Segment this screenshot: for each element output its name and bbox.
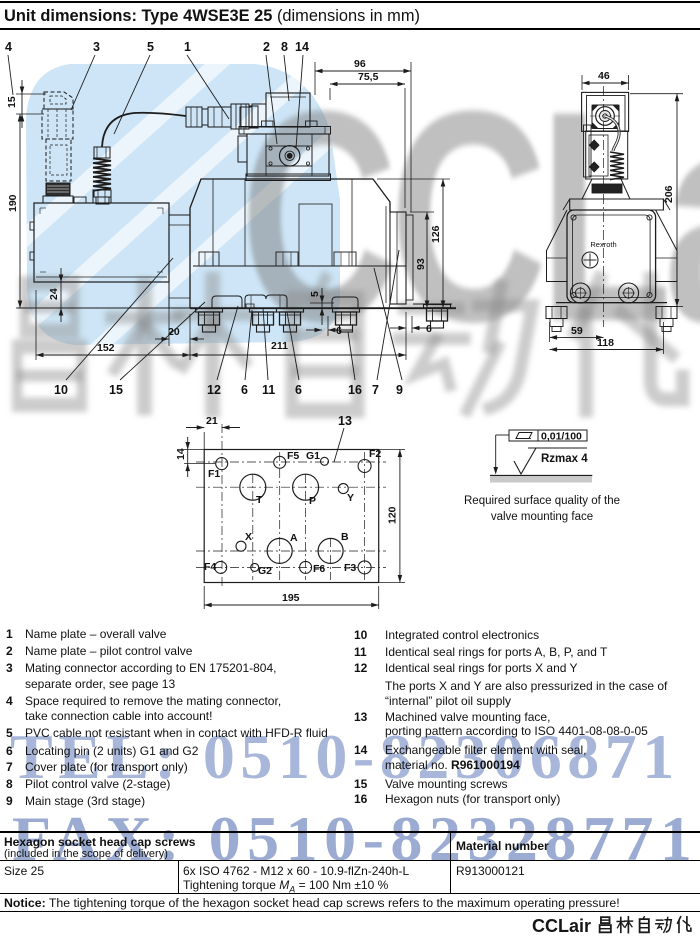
svg-text:24: 24 (48, 288, 60, 300)
svg-text:126: 126 (430, 225, 442, 243)
svg-text:T: T (256, 494, 263, 506)
svg-text:75,5: 75,5 (358, 71, 379, 83)
svg-text:10: 10 (54, 383, 68, 397)
svg-text:21: 21 (206, 415, 218, 427)
svg-text:4: 4 (5, 40, 12, 54)
svg-text:93: 93 (415, 258, 427, 270)
svg-text:6: 6 (336, 325, 342, 337)
svg-text:12: 12 (207, 383, 221, 397)
svg-text:14: 14 (175, 448, 187, 460)
svg-text:6: 6 (295, 383, 302, 397)
svg-text:190: 190 (7, 194, 19, 212)
svg-text:16: 16 (348, 383, 362, 397)
svg-text:211: 211 (271, 340, 288, 352)
svg-text:A: A (290, 532, 298, 544)
svg-text:120: 120 (387, 506, 399, 524)
svg-text:5: 5 (147, 40, 154, 54)
svg-text:13: 13 (338, 414, 352, 428)
svg-text:Rexroth: Rexroth (590, 240, 616, 249)
svg-text:8: 8 (281, 40, 288, 54)
svg-text:3: 3 (93, 40, 100, 54)
svg-text:14: 14 (295, 40, 309, 54)
svg-text:1: 1 (184, 40, 191, 54)
svg-text:F1: F1 (208, 468, 220, 480)
svg-text:118: 118 (597, 337, 614, 349)
svg-text:46: 46 (598, 70, 610, 82)
svg-text:15: 15 (6, 96, 18, 108)
svg-text:valve mounting face: valve mounting face (491, 511, 593, 523)
svg-text:59: 59 (571, 325, 583, 337)
svg-text:96: 96 (354, 58, 366, 70)
svg-text:0,01/100: 0,01/100 (541, 431, 582, 443)
svg-text:9: 9 (396, 383, 403, 397)
svg-text:F6: F6 (313, 563, 325, 575)
svg-text:F4: F4 (204, 561, 216, 573)
svg-text:6: 6 (426, 323, 432, 335)
svg-text:11: 11 (262, 383, 275, 397)
svg-text:5: 5 (309, 291, 321, 297)
svg-text:152: 152 (97, 342, 115, 354)
svg-text:X: X (245, 531, 252, 543)
svg-text:F5: F5 (287, 450, 299, 462)
svg-text:F3: F3 (344, 562, 356, 574)
svg-text:7: 7 (372, 383, 379, 397)
svg-text:195: 195 (282, 592, 300, 604)
svg-text:G2: G2 (258, 565, 272, 577)
svg-text:2: 2 (263, 40, 270, 54)
svg-text:B: B (341, 531, 349, 543)
svg-text:20: 20 (168, 326, 180, 338)
svg-text:G1: G1 (306, 450, 320, 462)
svg-text:P: P (309, 495, 316, 507)
svg-text:15: 15 (109, 383, 123, 397)
svg-text:206: 206 (663, 185, 675, 203)
svg-text:Y: Y (347, 492, 354, 504)
svg-text:6: 6 (241, 383, 248, 397)
svg-text:Rzmax 4: Rzmax 4 (541, 453, 588, 465)
svg-text:Required surface quality of th: Required surface quality of the (464, 495, 620, 507)
